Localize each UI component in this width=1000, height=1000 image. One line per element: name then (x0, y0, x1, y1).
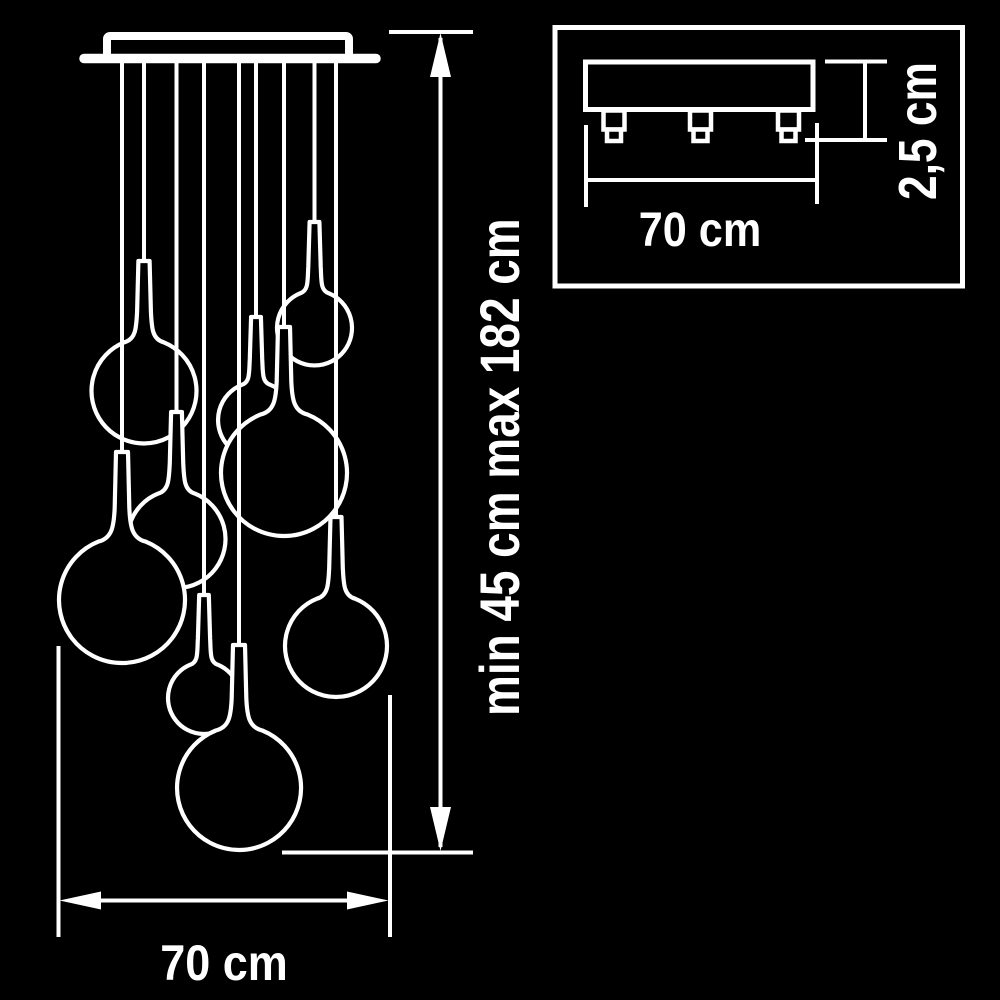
height-dimension-label: min 45 cm max 182 cm (469, 218, 531, 716)
main-width-label: 70 cm (160, 936, 288, 992)
inset-plate (586, 62, 814, 110)
connector-lower (782, 130, 796, 142)
connector-lower (607, 130, 621, 142)
connector-upper (690, 111, 711, 130)
inset-connector (778, 111, 799, 142)
connector-lower (694, 130, 708, 142)
inset-height-label: 2,5 cm (888, 62, 948, 200)
connector-upper (778, 111, 799, 130)
dimension-drawing-page: min 45 cm max 182 cm 70 cm 70 cm 2,5 cm (0, 0, 1000, 1000)
diagram-canvas: min 45 cm max 182 cm 70 cm 70 cm 2,5 cm (0, 0, 1000, 1000)
inset-connector (604, 111, 625, 142)
inset-width-label: 70 cm (639, 203, 761, 257)
canopy (84, 36, 376, 59)
inset-connector (690, 111, 711, 142)
connector-upper (604, 111, 625, 130)
